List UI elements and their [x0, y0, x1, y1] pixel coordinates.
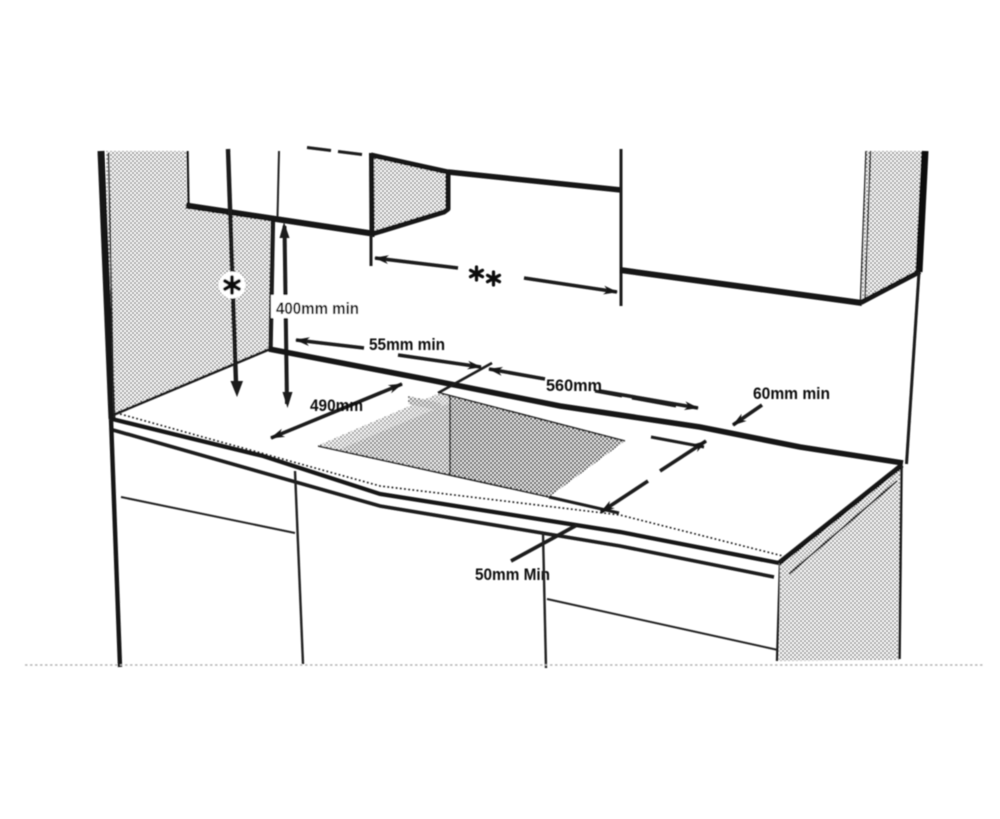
svg-text:400mm min: 400mm min: [276, 299, 359, 318]
svg-text:55mm min: 55mm min: [369, 335, 445, 354]
svg-text:560mm: 560mm: [546, 376, 602, 395]
svg-text:50mm Min: 50mm Min: [475, 566, 550, 584]
svg-text:60mm min: 60mm min: [753, 385, 830, 403]
svg-text:490mm: 490mm: [310, 397, 363, 415]
